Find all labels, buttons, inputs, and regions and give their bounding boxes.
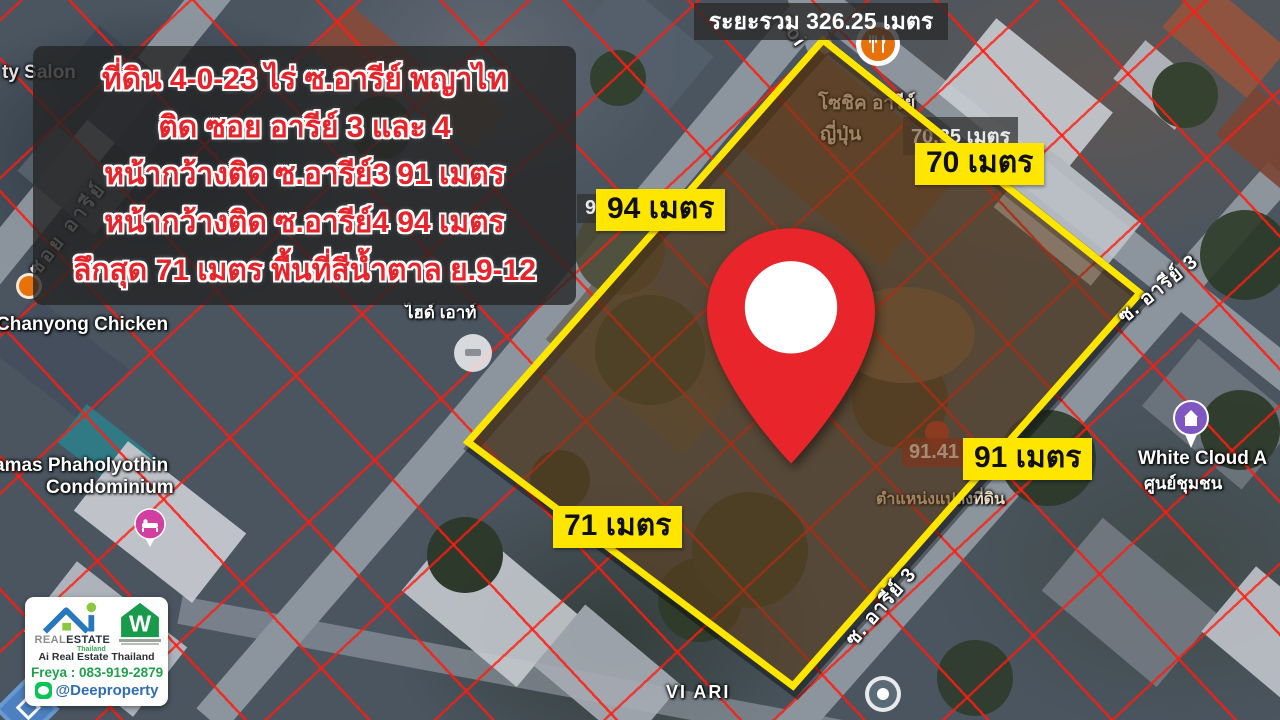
brand-real: REAL xyxy=(35,634,67,646)
brand-name: REALESTATE xyxy=(35,635,111,646)
measurement-71m: 71 เมตร xyxy=(553,506,682,548)
total-distance-bar: ระยะรวม 326.25 เมตร xyxy=(694,3,948,40)
community-pin-icon xyxy=(1172,399,1210,449)
measurement-94m: 94 เมตร xyxy=(596,189,725,231)
map-label-condo-2: Condominium xyxy=(46,477,174,499)
line-app-icon xyxy=(35,682,52,699)
ai-realestate-logo: REALESTATE Thailand xyxy=(31,602,114,653)
measurement-70m: 70 เมตร xyxy=(915,143,1044,185)
w-caption-line xyxy=(119,639,161,642)
map-label-community-center: ศูนย์ชุมชน xyxy=(1144,470,1222,497)
measure-point-icon xyxy=(454,334,492,372)
brand-estate: ESTATE xyxy=(66,634,110,646)
measurement-91m: 91 เมตร xyxy=(963,438,1092,480)
map-label-vi-ari: VI ARI xyxy=(666,682,730,703)
info-line-2: ติด ซอย อารีย์ 3 และ 4 xyxy=(158,110,450,146)
w-caption-line2 xyxy=(121,643,159,645)
info-line-1: ที่ดิน 4-0-23 ไร่ ซ.อารีย์ พญาไท xyxy=(102,62,507,98)
property-info-box: ที่ดิน 4-0-23 ไร่ ซ.อารีย์ พญาไท ติด ซอย… xyxy=(33,46,576,305)
map-label-white-cloud: White Cloud A xyxy=(1138,448,1267,470)
info-line-5: ลึกสุด 71 เมตร พื้นที่สีน้ำตาล ย.9-12 xyxy=(73,253,536,289)
line-account: @Deeproperty xyxy=(56,682,159,699)
info-line-3: หน้ากว้างติด ซ.อารีย์3 91 เมตร xyxy=(104,157,505,193)
hotel-marker-icon xyxy=(134,508,166,548)
map-label-condo-1: amas Phaholyothin xyxy=(0,455,168,477)
info-line-4: หน้ากว้างติด ซ.อารีย์4 94 เมตร xyxy=(104,205,505,241)
map-label-chanyong-chicken: Chanyong Chicken xyxy=(0,314,168,336)
agency-subtitle: Ai Real Estate Thailand xyxy=(31,651,162,663)
w-letter: W xyxy=(129,611,152,637)
agency-logo-card: REALESTATE Thailand W Ai Real Estate Tha… xyxy=(25,597,168,706)
ai-house-logo-icon xyxy=(43,602,101,634)
w-company-logo: W xyxy=(118,602,162,645)
agent-phone: Freya : 083-919-2879 xyxy=(31,665,162,680)
poi-circle-icon xyxy=(865,676,901,712)
w-house-logo-icon: W xyxy=(120,602,160,638)
land-listing-image: โซชิค อารีย์ ญี่ปุ่น ตำแหน่งแปลงที่ดิน 9… xyxy=(0,0,1280,720)
property-location-pin xyxy=(707,226,875,466)
